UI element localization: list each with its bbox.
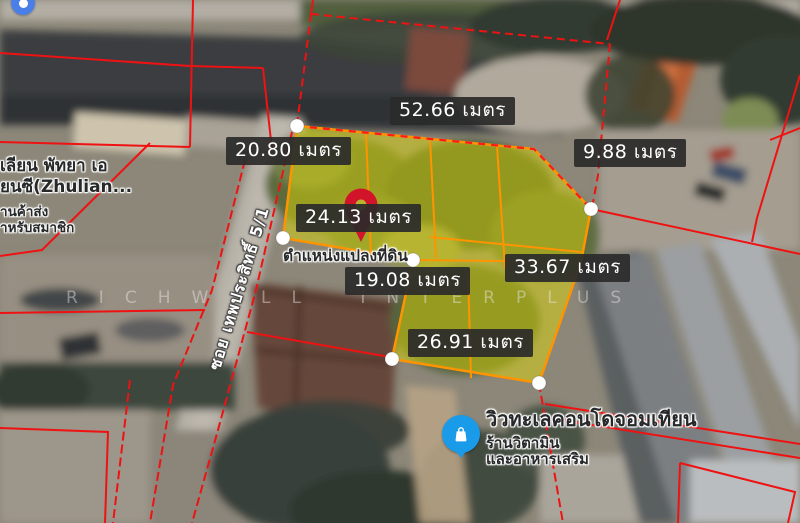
measurement-label-center: 19.08 เมตร [345, 267, 470, 295]
measurement-label-east: 33.67 เมตร [505, 254, 630, 282]
poi-pointer [455, 450, 467, 458]
poi-marker[interactable] [442, 415, 480, 459]
shopping-bag-icon [451, 424, 471, 444]
poi-dot-icon [19, 0, 28, 8]
measurement-label-south: 26.91 เมตร [408, 329, 533, 357]
poi-label-line3: และอาหารเสริม [486, 447, 589, 471]
plot-caption: ตำแหน่งแปลงที่ดิน [283, 243, 408, 268]
place-label-line4: าหรับสมาชิก [0, 216, 74, 238]
poi-circle[interactable] [442, 415, 480, 453]
measurement-label-west: 24.13 เมตร [296, 204, 421, 232]
measurement-label-north: 52.66 เมตร [390, 97, 515, 125]
place-label-line2: ยนซี(Zhulian... [0, 173, 132, 200]
measurement-label-northeast: 9.88 เมตร [574, 139, 686, 167]
map-canvas[interactable]: RICHWELL INTERPLUS เลียน พัทยา เอ ยนซี(Z… [0, 0, 800, 523]
measurement-label-northwest: 20.80 เมตร [226, 137, 351, 165]
